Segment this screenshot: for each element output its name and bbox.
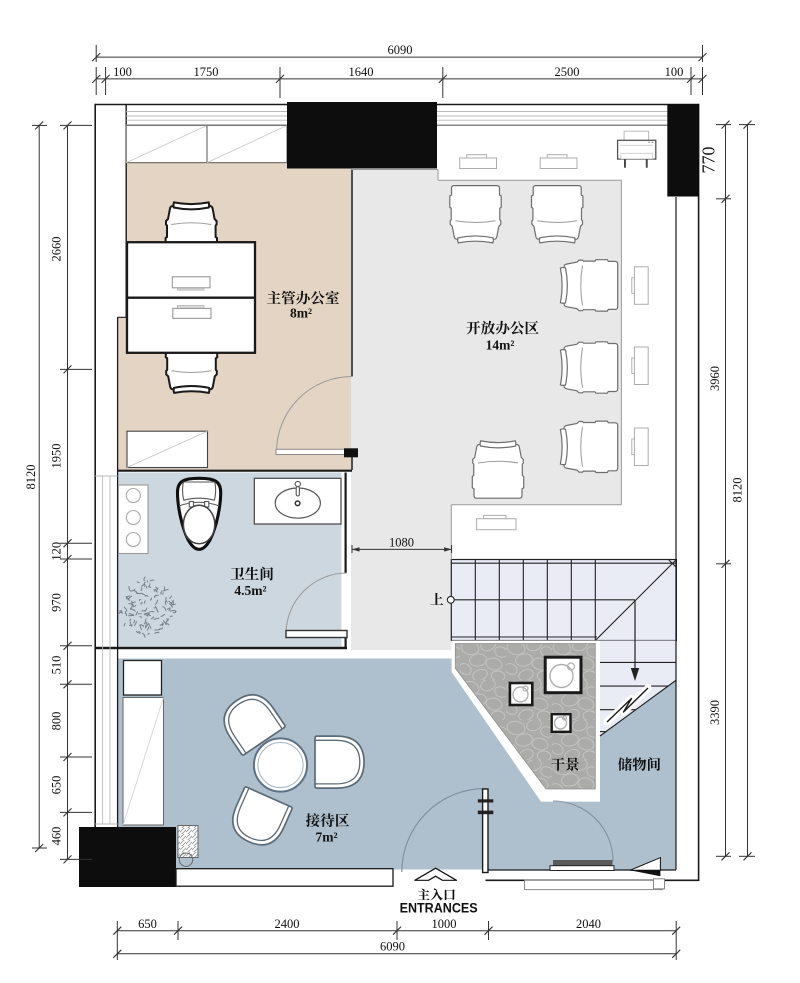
svg-text:6090: 6090 [388,43,413,57]
svg-text:3960: 3960 [708,366,722,391]
svg-text:8120: 8120 [24,465,38,490]
svg-text:1080: 1080 [389,536,414,550]
svg-text:120: 120 [50,542,64,561]
svg-text:800: 800 [50,712,64,731]
svg-text:7m²: 7m² [315,830,337,845]
svg-text:4.5m²: 4.5m² [234,583,266,598]
svg-text:ENTRANCES: ENTRANCES [400,901,478,916]
svg-text:510: 510 [50,656,64,675]
svg-text:2660: 2660 [50,237,64,262]
svg-text:2040: 2040 [576,917,601,931]
svg-text:8120: 8120 [731,478,745,503]
svg-text:1640: 1640 [349,65,374,79]
svg-text:3390: 3390 [708,700,722,725]
svg-text:100: 100 [113,65,132,79]
svg-text:14m²: 14m² [486,338,515,353]
svg-text:100: 100 [665,65,684,79]
svg-text:650: 650 [50,776,64,795]
svg-text:770: 770 [699,147,719,174]
svg-text:650: 650 [138,917,157,931]
svg-text:970: 970 [50,593,64,612]
svg-text:1950: 1950 [50,444,64,469]
svg-text:2400: 2400 [275,917,300,931]
svg-text:1750: 1750 [194,65,219,79]
svg-text:2500: 2500 [555,65,580,79]
svg-text:460: 460 [50,827,64,846]
svg-text:1000: 1000 [432,917,457,931]
svg-text:6090: 6090 [380,940,405,954]
svg-text:8m²: 8m² [290,306,312,321]
